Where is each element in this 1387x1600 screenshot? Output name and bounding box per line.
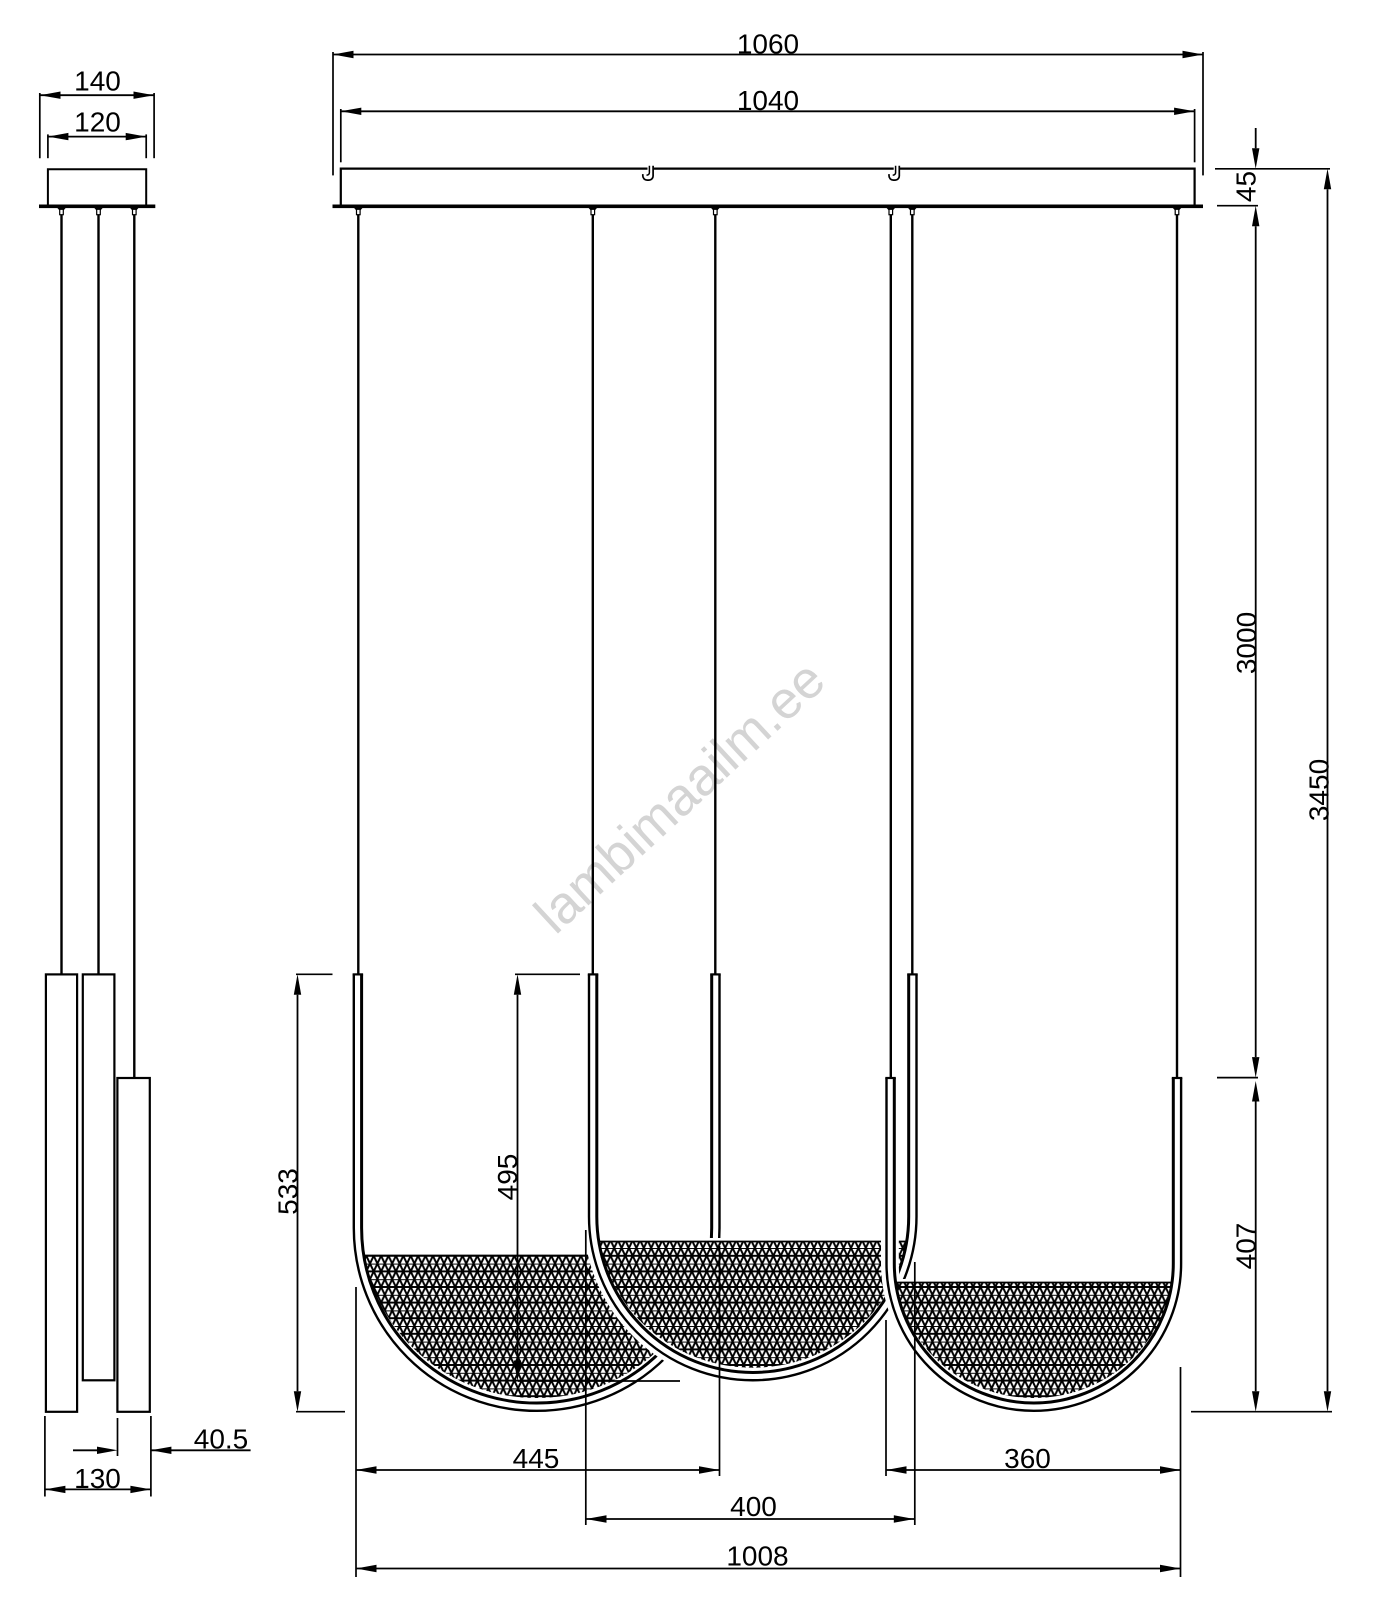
svg-text:360: 360 [1004, 1443, 1051, 1474]
svg-text:130: 130 [74, 1463, 121, 1494]
svg-text:40.5: 40.5 [194, 1424, 249, 1455]
svg-text:3450: 3450 [1304, 759, 1335, 821]
svg-text:3000: 3000 [1231, 612, 1262, 674]
svg-text:1040: 1040 [737, 85, 799, 116]
svg-text:1060: 1060 [737, 29, 799, 60]
svg-text:45: 45 [1231, 171, 1262, 202]
svg-text:533: 533 [273, 1168, 304, 1215]
svg-text:140: 140 [74, 66, 121, 97]
svg-text:1008: 1008 [726, 1541, 788, 1572]
svg-text:120: 120 [74, 107, 121, 138]
svg-text:445: 445 [513, 1443, 560, 1474]
svg-text:407: 407 [1231, 1223, 1262, 1270]
svg-text:495: 495 [492, 1154, 523, 1201]
svg-text:400: 400 [730, 1491, 777, 1522]
